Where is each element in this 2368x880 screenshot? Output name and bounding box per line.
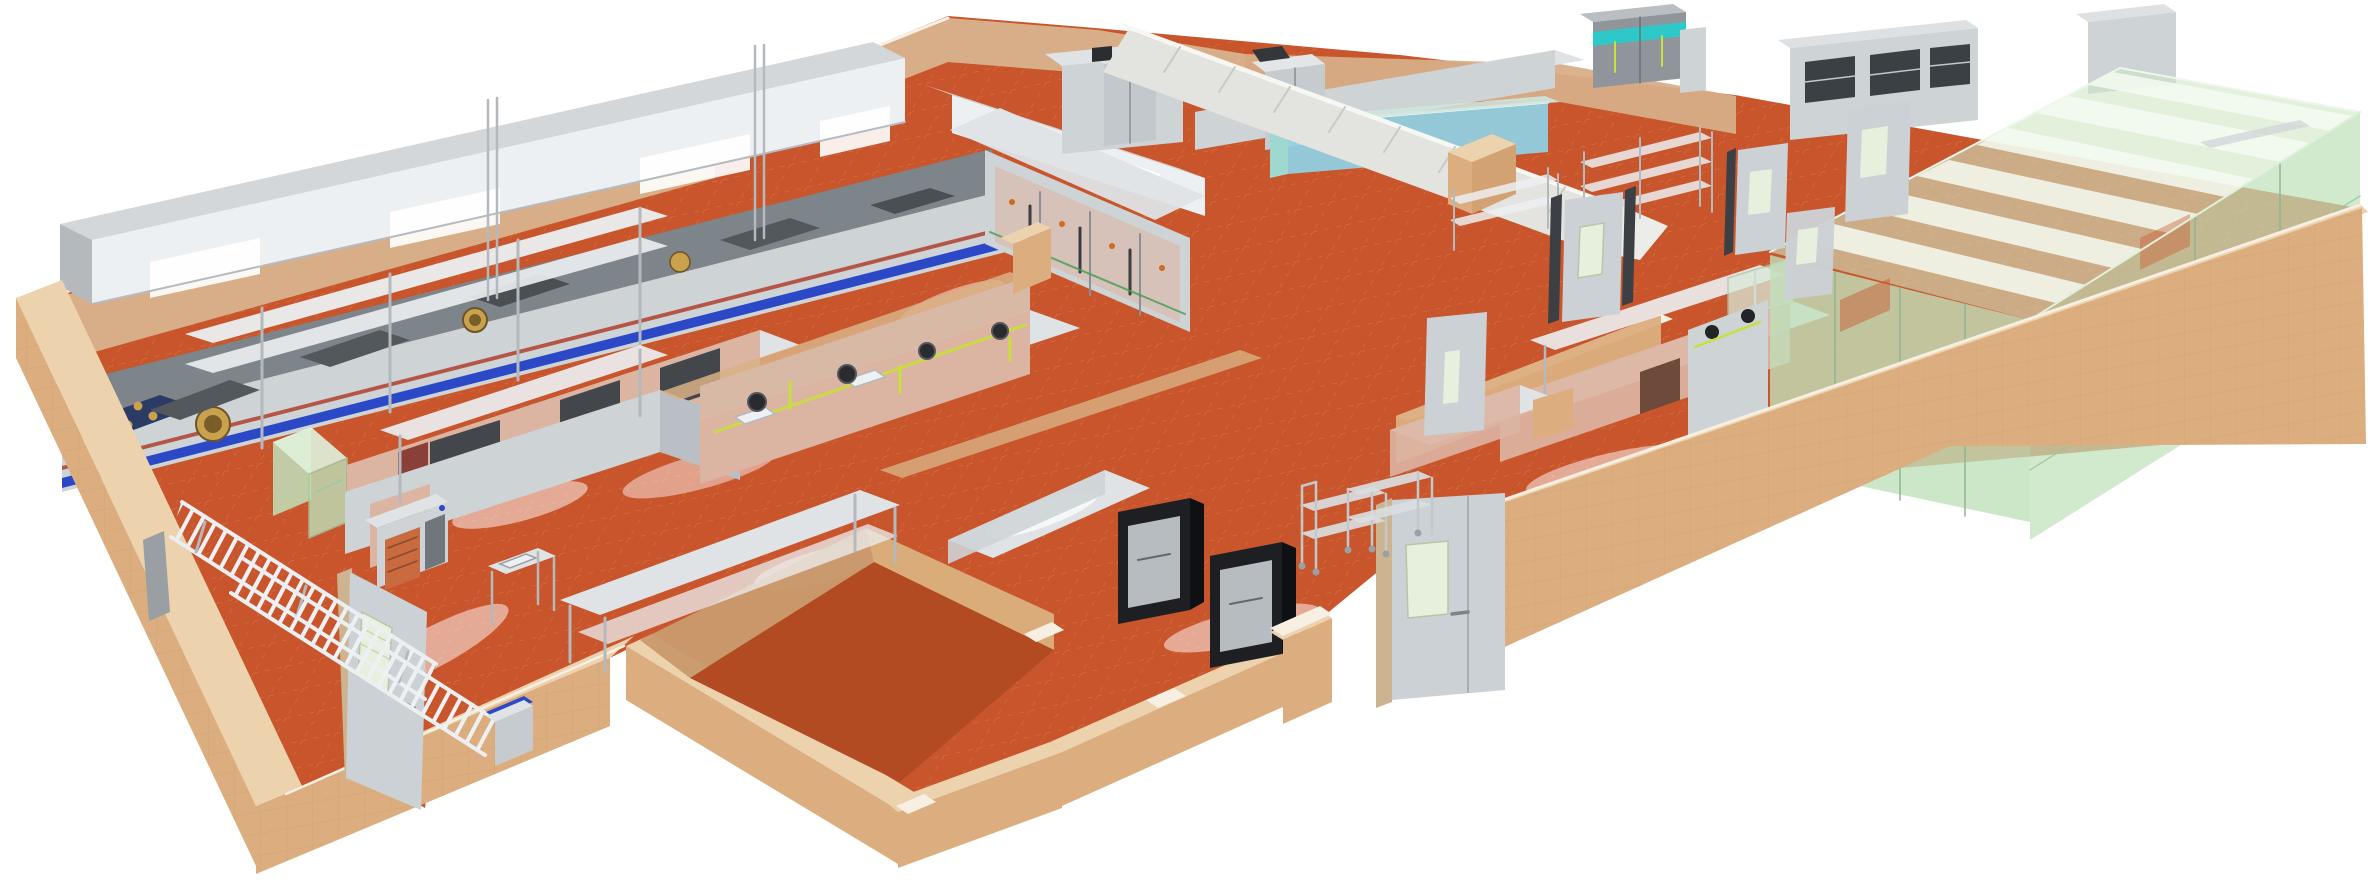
upright-fridge-compressor	[1092, 46, 1112, 62]
wok-cooker-1	[748, 393, 766, 411]
dumbwaiter-2-door	[1220, 560, 1272, 652]
wok-burner-2-well	[469, 314, 481, 326]
trolley-a-caster-4	[1383, 551, 1390, 558]
dumbwaiter-1-side	[1190, 498, 1204, 610]
trolley-a-caster-2	[1313, 569, 1320, 576]
wok-cooker-3	[919, 343, 935, 359]
room-door-4-window	[1860, 126, 1888, 178]
room-door-1-window	[1443, 350, 1460, 404]
trolley-b-caster-2	[1415, 530, 1422, 537]
trolley-a-caster-3	[1369, 546, 1376, 553]
dumbwaiter-1-door	[1128, 516, 1180, 608]
small-cabinet	[1680, 27, 1706, 93]
steamer-badge-3	[1109, 243, 1115, 249]
trolley-a-caster-1	[1299, 563, 1306, 570]
room-door-3-window	[1748, 169, 1772, 215]
undercounter-fridge-grille	[425, 514, 445, 570]
commercial-kitchen-3d-render	[0, 0, 2368, 880]
wok-burner-3	[670, 252, 690, 272]
burner-3	[134, 402, 143, 411]
wok-cooker-2	[838, 365, 856, 383]
tiled-pillar-1-left	[1448, 152, 1472, 214]
trolley-b-caster-1	[1345, 547, 1352, 554]
kitchen-render-canvas	[0, 0, 2368, 880]
wok-cooker-4	[992, 323, 1008, 339]
dishwash-pot-2	[1741, 309, 1755, 323]
room-door-2-window	[1578, 223, 1604, 278]
pass-door-handle	[1452, 612, 1468, 614]
dishwash-pot-1	[1705, 325, 1719, 339]
wok-burner-1-well	[204, 415, 222, 433]
undercounter-fridge-badge	[439, 505, 445, 511]
pass-door-frame	[1376, 498, 1392, 708]
steamer-badge-4	[1159, 265, 1165, 271]
pass-door-window	[1406, 541, 1448, 618]
burner-6	[149, 412, 158, 421]
steamer-badge-1	[1009, 199, 1015, 205]
room-door-5-window	[1796, 227, 1818, 265]
steamer-badge-2	[1059, 221, 1065, 227]
